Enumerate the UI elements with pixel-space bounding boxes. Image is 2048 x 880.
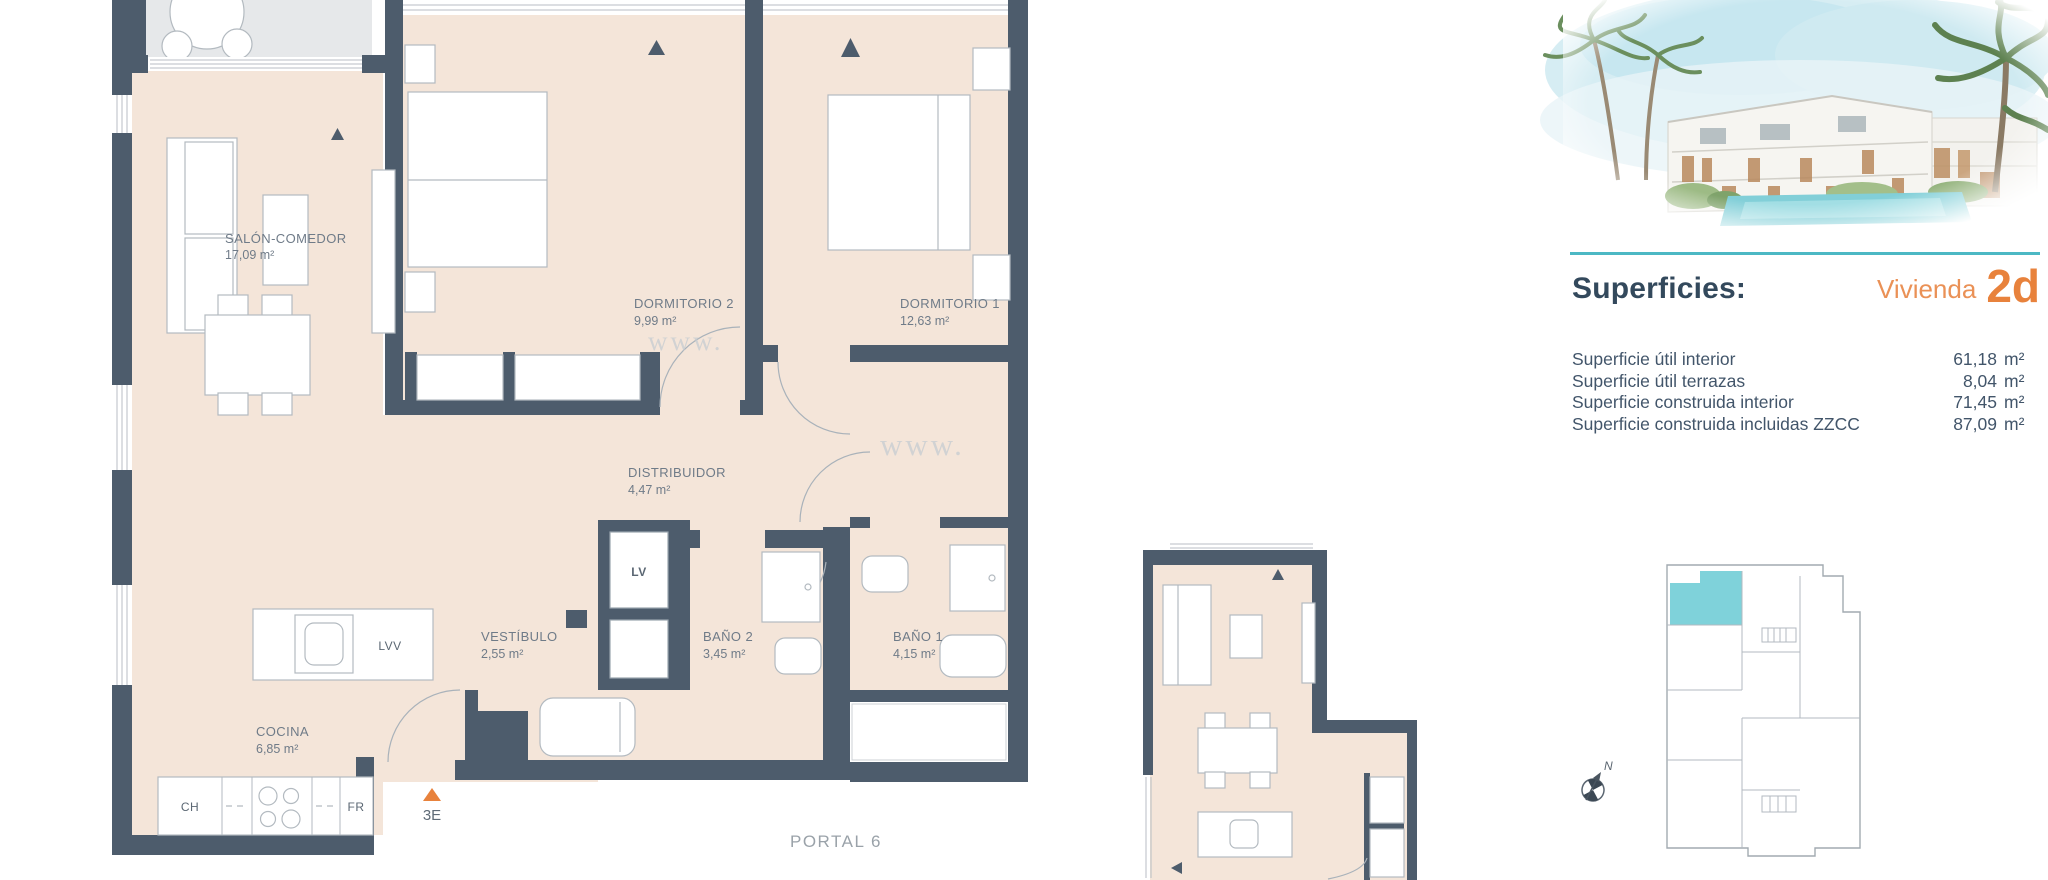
entrance-marker: 3E [423, 788, 441, 824]
kitchen-counter: CH FR [158, 777, 373, 835]
room-area-salon: 17,09 m² [225, 248, 274, 262]
room-area-dorm1: 12,63 m² [900, 314, 949, 328]
bedroom-windows [403, 0, 1008, 15]
floorplan-graphics: LV LVV [0, 0, 2048, 880]
table-row: Superficie útil terrazas 8,04 m² [1572, 371, 2040, 393]
ch-label: CH [181, 800, 199, 814]
unit-code: 2d [1986, 266, 2040, 306]
room-area-cocina: 6,85 m² [256, 742, 298, 756]
room-label-bano2: BAÑO 2 [703, 629, 753, 644]
room-label-dorm1: DORMITORIO 1 [900, 296, 1000, 311]
fr-label: FR [348, 800, 365, 814]
row-unit: m² [1997, 414, 2040, 436]
row-value: 71,45 [1937, 392, 1997, 414]
room-area-bano2: 3,45 m² [703, 647, 745, 661]
row-label: Superficie útil interior [1572, 349, 1937, 371]
row-label: Superficie construida incluidas ZZCC [1572, 414, 1937, 436]
superficies-title: Superficies: [1572, 272, 1746, 306]
row-label: Superficie útil terrazas [1572, 371, 1937, 393]
compass-north-label: N [1604, 759, 1613, 773]
unit-identifier: Vivienda 2d [1877, 266, 2040, 306]
table-row: Superficie útil interior 61,18 m² [1572, 349, 2040, 371]
floorplan-sheet: LV LVV [0, 0, 2048, 880]
panel-heading: Superficies: Vivienda 2d [1572, 266, 2040, 306]
room-label-distribuidor: DISTRIBUIDOR [628, 465, 726, 480]
building-render-image [1540, 0, 2048, 228]
teal-divider [1570, 252, 2040, 255]
room-label-cocina: COCINA [256, 724, 309, 739]
entrance-triangle-icon [423, 788, 441, 801]
compass-icon: N [1578, 759, 1613, 805]
room-label-bano1: BAÑO 1 [893, 629, 943, 644]
lv-closet: LV [610, 532, 668, 678]
row-unit: m² [1997, 392, 2040, 414]
table-row: Superficie construida interior 71,45 m² [1572, 392, 2040, 414]
entrance-label: 3E [423, 807, 441, 824]
areas-table: Superficie útil interior 61,18 m² Superf… [1572, 349, 2040, 435]
row-label: Superficie construida interior [1572, 392, 1937, 414]
room-area-distribuidor: 4,47 m² [628, 483, 670, 497]
vivienda-label: Vivienda [1877, 272, 1976, 306]
adjacent-space [852, 704, 1006, 760]
room-area-bano1: 4,15 m² [893, 647, 935, 661]
secondary-floor-plan [1143, 544, 1417, 880]
corridor-floor [763, 362, 1008, 415]
main-floor-plan: LV LVV [112, 0, 1028, 855]
room-label-salon: SALÓN-COMEDOR [225, 231, 347, 246]
kitchen-island [253, 609, 433, 680]
table-row: Superficie construida incluidas ZZCC 87,… [1572, 414, 2040, 436]
portal-label: PORTAL 6 [790, 832, 882, 851]
terrace-window [132, 55, 385, 73]
row-value: 61,18 [1937, 349, 1997, 371]
row-unit: m² [1997, 349, 2040, 371]
key-plan [1667, 565, 1860, 856]
watermark-text: www. [648, 326, 724, 356]
lvv-label: LVV [378, 639, 401, 653]
room-label-vestibulo: VESTÍBULO [481, 629, 558, 644]
row-value: 8,04 [1937, 371, 1997, 393]
row-value: 87,09 [1937, 414, 1997, 436]
lv-label: LV [631, 565, 646, 579]
dorm2-closets [417, 355, 640, 400]
room-area-vestibulo: 2,55 m² [481, 647, 523, 661]
row-unit: m² [1997, 371, 2040, 393]
room-label-dorm2: DORMITORIO 2 [634, 296, 734, 311]
watermark-text-2: www. [880, 427, 965, 462]
